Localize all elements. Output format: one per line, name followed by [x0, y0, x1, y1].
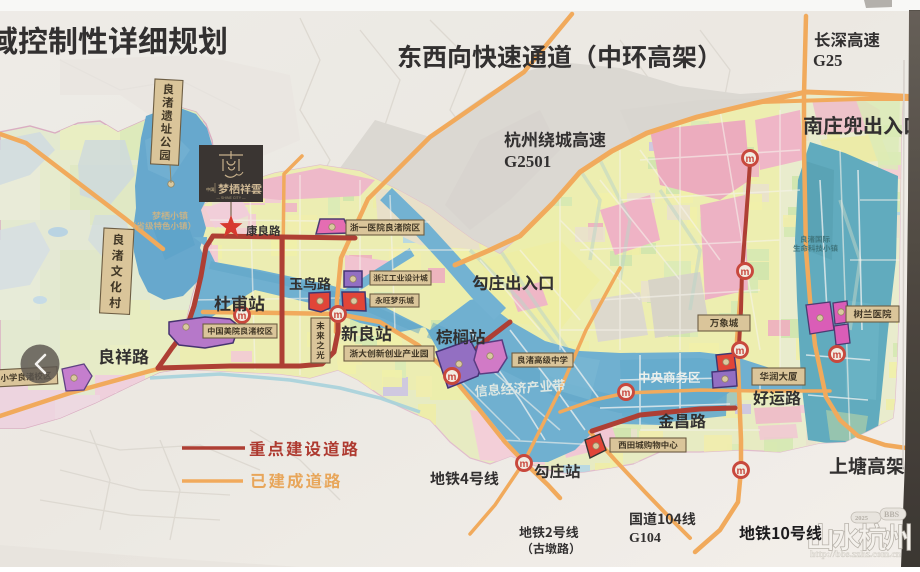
svg-text:2025: 2025 — [855, 515, 869, 522]
svg-text:http://bbs.zzhz.com.cn: http://bbs.zzhz.com.cn — [810, 550, 902, 560]
svg-text:BBS: BBS — [884, 510, 900, 519]
